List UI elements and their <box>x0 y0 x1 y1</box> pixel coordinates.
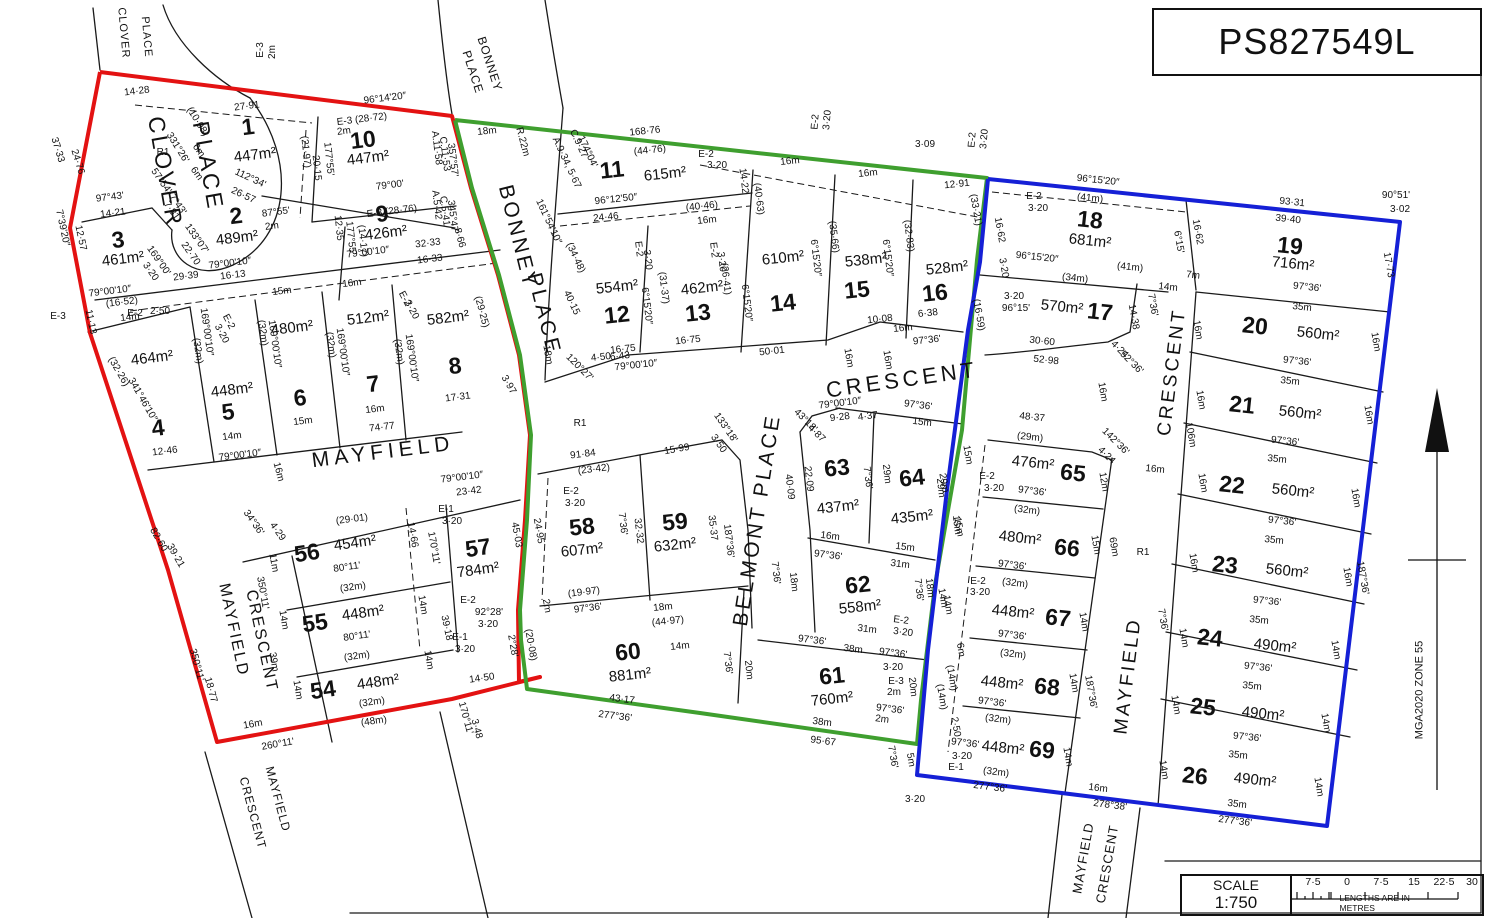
lot-area: 570m² <box>1040 297 1084 316</box>
dimension-label: 15m <box>951 517 964 538</box>
dimension-label: 14·22 <box>736 168 749 195</box>
lot-number: 4 <box>150 416 166 440</box>
lot-number: 62 <box>844 572 872 598</box>
scale-bar-cell: LENGTHS ARE IN METRES <box>1292 876 1482 914</box>
dimension-label: E-2 <box>460 596 476 606</box>
dimension-label: 16m <box>1190 320 1203 341</box>
lot-area: 476m² <box>1011 453 1055 472</box>
dimension-label: 3·20 <box>822 110 834 131</box>
dimension-label: E-3 <box>256 42 266 58</box>
dimension-label: 92°28' <box>475 608 503 618</box>
dimension-label: 16m <box>1348 488 1361 509</box>
dimension-label: 16m <box>1145 464 1165 476</box>
dimension-label: 4·50 <box>591 352 612 364</box>
dimension-label: 16m <box>1368 332 1381 353</box>
lot-area: 448m² <box>980 673 1024 692</box>
dimension-label: 14m <box>421 650 434 671</box>
lot-area: 610m² <box>761 248 805 267</box>
dimension-label: 35m <box>1242 681 1262 693</box>
dimension-label: 14m <box>1168 695 1181 716</box>
dimension-label: 14m <box>1311 777 1324 798</box>
dimension-label: 3·20 <box>970 588 990 598</box>
dimension-label: 16m <box>841 348 854 369</box>
dimension-label: 15m <box>1088 535 1101 556</box>
lot-area: 760m² <box>810 689 854 708</box>
dimension-label: 3·20 <box>984 484 1004 494</box>
lot-area: 554m² <box>595 277 639 296</box>
dimension-label: 3·20 <box>1004 292 1024 302</box>
lot-area: 490m² <box>1233 770 1277 789</box>
dimension-label: 29m <box>880 464 892 485</box>
lot-area: 538m² <box>844 250 888 269</box>
dimension-label: 2m <box>264 221 279 233</box>
dimension-label: E-2 <box>810 114 821 130</box>
lot-number: 59 <box>661 509 689 535</box>
lot-number: 26 <box>1181 763 1209 789</box>
dimension-label: 16m <box>697 215 717 227</box>
lot-number: 67 <box>1044 605 1072 631</box>
dimension-label: 20m <box>906 677 918 698</box>
lot-area: 480m² <box>998 528 1042 547</box>
dimension-label: 3·20 <box>565 499 585 509</box>
lot-number: 8 <box>447 354 463 378</box>
lot-area: 881m² <box>608 665 652 684</box>
dimension-label: 3·20 <box>707 161 727 171</box>
dimension-label: 3·20 <box>883 663 903 673</box>
dimension-label: 40·09 <box>782 474 795 501</box>
lot-area: 448m² <box>991 602 1035 621</box>
dimension-label: 35m <box>1280 376 1300 388</box>
dimension-label: 14m <box>1176 628 1189 649</box>
dimension-label: 3·20 <box>455 645 475 655</box>
scale-label: SCALE <box>1213 877 1259 893</box>
dimension-label: E-1 <box>452 633 468 643</box>
dimension-label: 3·20 <box>1028 204 1048 214</box>
dimension-label: E-3 <box>50 312 66 322</box>
lot-number: 56 <box>293 540 322 566</box>
dimension-label: 2m <box>874 714 889 726</box>
dimension-label: 14m <box>670 641 690 653</box>
dimension-label: 12m <box>1096 472 1109 493</box>
lot-area: 615m² <box>643 164 687 183</box>
dimension-label: 14m <box>1156 760 1169 781</box>
dimension-label: 15m <box>960 445 973 466</box>
dimension-label: 3·20 <box>478 620 498 630</box>
dimension-label: 6m <box>954 642 966 657</box>
dimension-label: 3·20 <box>715 251 727 272</box>
lot-number: 57 <box>464 535 493 561</box>
dimension-label: 16m <box>1361 405 1374 426</box>
lot-number: 17 <box>1086 299 1114 325</box>
dimension-label: 14m <box>1328 640 1341 661</box>
lot-number: 9 <box>374 202 390 226</box>
dimension-label: 18m <box>923 578 935 599</box>
dimension-label: 12·35 <box>332 215 345 241</box>
dimension-label: 3·02 <box>1390 205 1410 215</box>
dimension-label: 177°55' <box>321 142 334 177</box>
lot-area: 560m² <box>1278 403 1322 422</box>
lot-number: 22 <box>1218 472 1246 498</box>
dimension-label: R1 <box>1137 548 1150 558</box>
dimension-label: 3·20 <box>952 752 972 762</box>
dimension-label: 96°15' <box>1002 304 1030 314</box>
dimension-label: E-2 <box>970 577 986 587</box>
dimension-label: 20·15 <box>310 155 323 181</box>
dimension-label: 22·09 <box>801 466 814 493</box>
plan-number-box: PS827549L <box>1152 8 1482 76</box>
lot-area: 490m² <box>1241 704 1285 723</box>
dimension-label: 90°51' <box>1382 191 1410 201</box>
dimension-label: 32·32 <box>631 518 644 545</box>
lot-number: 64 <box>898 465 926 491</box>
dimension-label: 2m <box>268 45 278 59</box>
dimension-label: 6·38 <box>918 308 939 320</box>
lot-number: 11 <box>599 157 626 182</box>
lot-number: 2 <box>228 204 244 228</box>
lot-number: 21 <box>1228 392 1256 418</box>
dimension-label: E-2 <box>563 487 579 497</box>
lot-area: 560m² <box>1296 324 1340 343</box>
lot-number: 65 <box>1059 460 1087 486</box>
dimension-label: 16m <box>780 156 800 168</box>
lot-number: 13 <box>684 300 712 326</box>
dimension-label: 69m <box>1106 537 1119 558</box>
dimension-label: 18m <box>477 126 497 138</box>
scale-units: LENGTHS ARE IN METRES <box>1340 893 1435 913</box>
dimension-label: 2·50 <box>150 307 170 317</box>
dimension-label: 3·20 <box>905 795 925 805</box>
dimension-label: 14m <box>1158 282 1178 294</box>
lot-number: 24 <box>1196 625 1224 651</box>
dimension-label: E-2 <box>698 150 714 160</box>
lot-number: 6 <box>292 386 308 410</box>
lot-area: 558m² <box>838 597 882 616</box>
lot-number: 60 <box>614 639 642 665</box>
dimension-label: 2m <box>887 688 901 698</box>
dimension-label: 3·20 <box>979 129 991 150</box>
dimension-label: 35m <box>1249 615 1269 627</box>
dimension-label: 14m <box>290 680 303 701</box>
dimension-label: 7°36' <box>616 512 629 536</box>
dimension-label: 16m <box>1186 553 1199 574</box>
dimension-label: 3·20 <box>996 257 1009 278</box>
lot-number: 5 <box>220 400 236 424</box>
dimension-label: 14m <box>940 595 953 616</box>
lot-number: 20 <box>1241 313 1269 339</box>
dimension-label: 2·50 <box>948 716 961 737</box>
lot-number: 63 <box>823 455 851 481</box>
lot-area: 448m² <box>981 738 1025 757</box>
dimension-label: 16m <box>858 168 878 180</box>
subdivision-plan-sheet: 14·2827·9196°14'20″E-32m(10·08)331°26'E-… <box>0 0 1487 918</box>
dimension-label: 29m <box>936 473 949 494</box>
plan-number: PS827549L <box>1218 21 1415 63</box>
dimension-label: 14m <box>1060 747 1073 768</box>
dimension-label: R1 <box>574 419 587 429</box>
dimension-label: 35·37 <box>705 515 718 542</box>
dimension-label: 3·20 <box>641 249 653 270</box>
dimension-label: 3·20 <box>442 517 462 527</box>
dimension-label: 2m <box>540 598 552 613</box>
dimension-label: E-1 <box>948 763 964 773</box>
lot-number: 69 <box>1028 737 1056 763</box>
lot-area: 632m² <box>653 535 697 554</box>
dimension-label: 16m <box>1195 473 1208 494</box>
lot-area: 560m² <box>1271 481 1315 500</box>
lot-number: 15 <box>843 277 871 303</box>
dimension-label: 7°36' <box>721 651 734 675</box>
dimension-label: 18m <box>787 572 799 593</box>
dimension-label: E-3 <box>888 677 904 687</box>
dimension-label: 35m <box>1264 535 1284 547</box>
dimension-label: 14m <box>276 610 289 631</box>
dimension-label: 3·09 <box>915 140 935 150</box>
dimension-label: 7°36' <box>769 561 782 585</box>
lot-area: 607m² <box>560 540 604 559</box>
lot-area: 528m² <box>925 258 969 277</box>
dimension-label: E-2 <box>967 132 978 148</box>
lot-area: 681m² <box>1068 231 1112 250</box>
lot-area: 560m² <box>1265 561 1309 580</box>
north-label: MGA2020 ZONE 55 <box>1415 641 1426 739</box>
lot-number: 66 <box>1053 535 1081 561</box>
scale-ratio-cell: SCALE 1:750 <box>1182 876 1292 914</box>
dimension-label: 14m <box>1076 612 1089 633</box>
street-label: PLACE <box>139 16 154 58</box>
dimension-label: 16m <box>893 323 913 335</box>
lot-number: 12 <box>603 302 631 328</box>
lot-number: 1 <box>240 115 256 139</box>
lot-number: 18 <box>1076 207 1104 233</box>
lot-number: 61 <box>818 663 846 689</box>
dimension-label: E-2 <box>979 472 995 482</box>
lot-number: 68 <box>1033 674 1061 700</box>
dimension-label: 35m <box>1292 302 1312 314</box>
dimension-label: 35m <box>1228 750 1248 762</box>
dimension-label: 5m <box>904 752 916 767</box>
dimension-label: 16m <box>1340 567 1353 588</box>
dimension-label: 20m <box>742 660 754 681</box>
dimension-label: 14m <box>1318 713 1331 734</box>
lot-number: 54 <box>309 677 338 703</box>
dimension-label: 16m <box>1095 382 1108 403</box>
scale-box: SCALE 1:750 LENGTHS ARE IN METRES <box>1180 874 1484 916</box>
lot-number: 3 <box>110 228 126 252</box>
dimension-label: 35m <box>1267 454 1287 466</box>
lot-area: 437m² <box>816 497 860 516</box>
lot-number: 25 <box>1189 694 1217 720</box>
lot-number: 55 <box>301 610 330 636</box>
lot-number: 16 <box>921 280 949 306</box>
dimension-label: 11m <box>266 553 279 573</box>
lot-area: 490m² <box>1253 636 1297 655</box>
dimension-label: 7m <box>1186 270 1201 281</box>
dimension-label: 14m <box>415 595 428 616</box>
dimension-label: 14m <box>1066 673 1079 694</box>
lot-number: 23 <box>1211 552 1239 578</box>
lot-number: 14 <box>769 290 797 316</box>
lot-number: 7 <box>365 372 381 396</box>
dimension-label: 16m <box>1193 390 1206 411</box>
lot-number: 58 <box>568 514 596 540</box>
lot-area: 716m² <box>1271 254 1315 273</box>
scale-ratio: 1:750 <box>1215 893 1258 913</box>
dimension-label: 18m <box>653 602 673 614</box>
dimension-label: 7°36' <box>861 466 874 490</box>
dimension-label: E-2 <box>1026 192 1042 202</box>
lot-area: 462m² <box>680 278 724 297</box>
lot-area: 435m² <box>890 507 934 526</box>
dimension-label: E-1 <box>438 505 454 515</box>
